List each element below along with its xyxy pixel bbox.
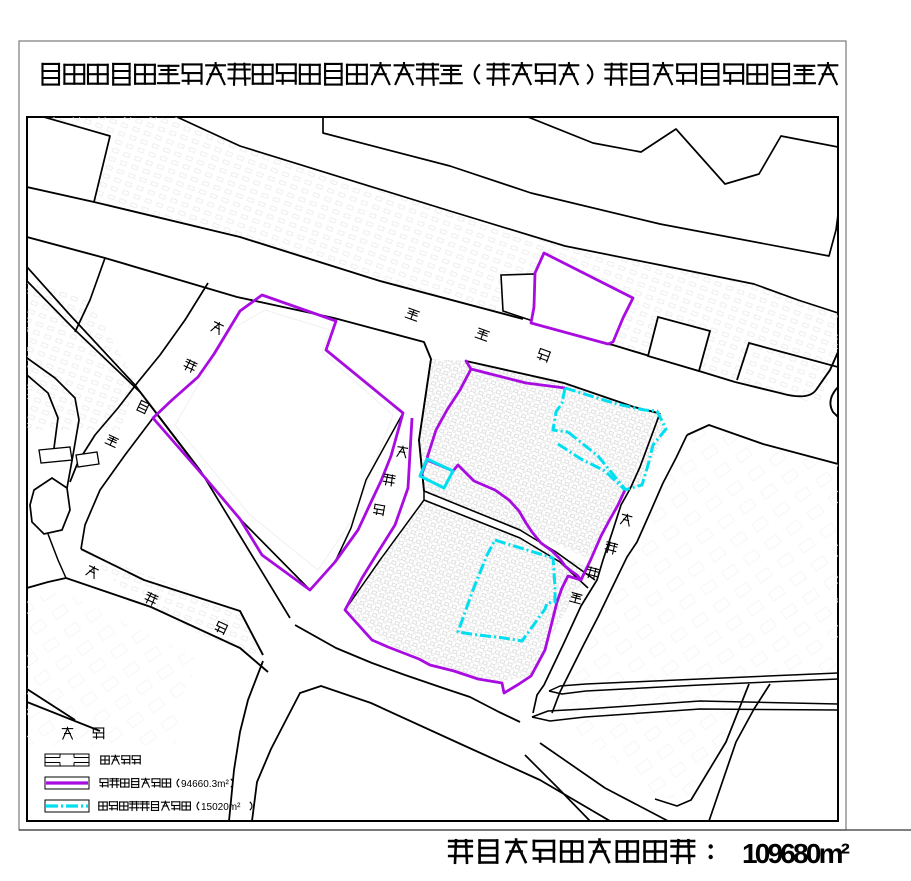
svg-text:109680m²: 109680m² bbox=[742, 838, 850, 869]
svg-text:94660.3m²: 94660.3m² bbox=[181, 779, 229, 790]
svg-text:15020m²: 15020m² bbox=[201, 802, 241, 813]
